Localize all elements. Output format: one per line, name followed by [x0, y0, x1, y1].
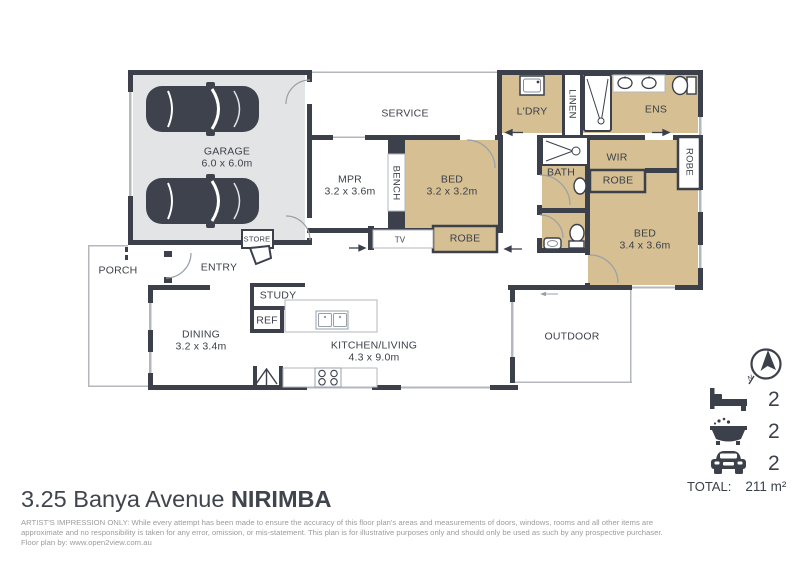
disclaimer-line-1: ARTIST'S IMPRESSION ONLY: While every at… [21, 518, 781, 528]
bathtub-icon [710, 418, 747, 445]
label-store: STORE [244, 233, 271, 245]
car-space-count: 2 [768, 452, 780, 476]
disclaimer: ARTIST'S IMPRESSION ONLY: While every at… [21, 518, 781, 547]
ens-toilet [673, 77, 697, 95]
ens-shower [584, 75, 611, 131]
bed-icon [710, 388, 747, 411]
label-garage: GARAGE6.0 x 6.0m [201, 147, 252, 170]
label-porch: PORCH [99, 265, 138, 277]
label-ref: REF [256, 315, 278, 327]
label-robe-bed1: ROBE [450, 233, 481, 245]
ens-vanity [613, 75, 665, 92]
label-study: STUDY [260, 290, 297, 302]
label-entry: ENTRY [201, 262, 237, 274]
total-label: TOTAL: [687, 479, 731, 494]
label-bench: BENCH [391, 166, 402, 201]
label-robe-right: ROBE [684, 148, 695, 176]
wc-sink [544, 238, 561, 249]
label-wir: WIR [606, 152, 627, 164]
bath-sink [574, 178, 586, 194]
car-front-icon [711, 451, 746, 474]
label-outdoor: OUTDOOR [544, 331, 599, 343]
pantry [256, 369, 277, 387]
label-service: SERVICE [381, 108, 428, 120]
label-mpr: MPR3.2 x 3.6m [324, 175, 375, 198]
kitchen-island [285, 300, 377, 332]
address-street: 3.25 Banya Avenue [21, 486, 224, 512]
total-area: TOTAL: 211 m² [687, 479, 786, 494]
label-kitchen-living: KITCHEN/LIVING4.3 x 9.0m [331, 341, 417, 364]
car-top-icon [146, 82, 259, 136]
bedroom-count: 2 [768, 388, 780, 412]
property-address: 3.25 Banya Avenue NIRIMBA [21, 486, 331, 513]
label-bed2: BED3.4 x 3.6m [619, 229, 670, 252]
label-bed1: BED3.2 x 3.2m [426, 175, 477, 198]
total-value: 211 m² [745, 479, 786, 494]
label-dining: DINING3.2 x 3.4m [175, 330, 226, 353]
floor-plan-drawing [0, 0, 800, 565]
floor-plan-page: GARAGE6.0 x 6.0m SERVICE MPR3.2 x 3.6m B… [0, 0, 800, 565]
disclaimer-line-2: approximate and no responsibility is tak… [21, 528, 781, 538]
floorplan-credit: Floor plan by: www.open2view.com.au [21, 538, 781, 548]
car-top-icon [146, 174, 259, 228]
label-robe-wir: ROBE [603, 175, 634, 187]
kitchen-bench-stove [283, 368, 377, 387]
label-bath: BATH [547, 167, 575, 179]
bathroom-count: 2 [768, 420, 780, 444]
label-linen: LINEN [567, 89, 578, 118]
wc-toilet [569, 225, 584, 249]
label-ldry: L'DRY [517, 106, 548, 118]
label-ens: ENS [645, 104, 667, 116]
bath-tub [542, 137, 588, 165]
label-tv: TV [395, 234, 406, 246]
address-suburb: NIRIMBA [231, 486, 332, 512]
laundry-sink [520, 76, 544, 95]
